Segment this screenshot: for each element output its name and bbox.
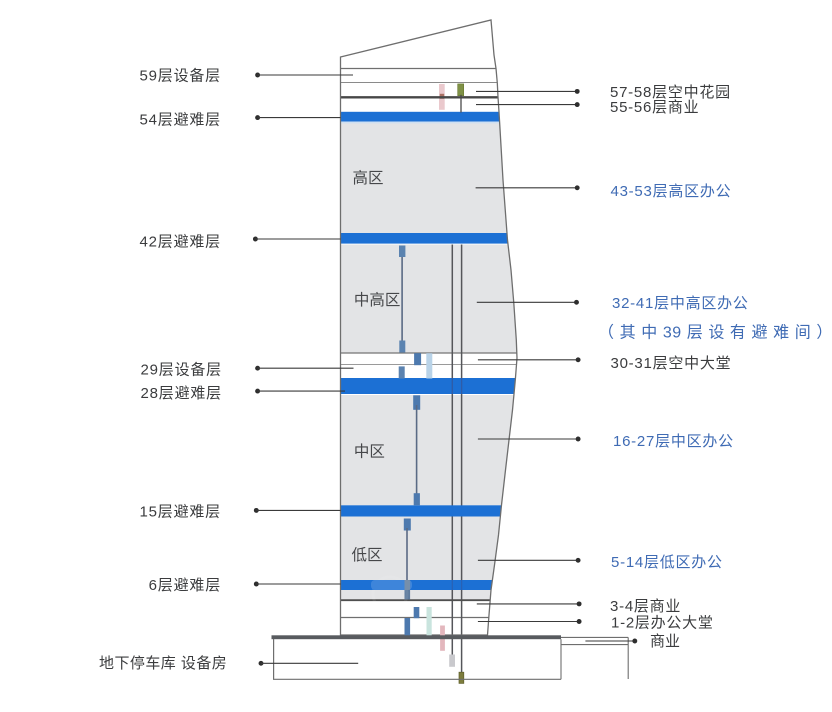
svg-text:32-41层中高区办公: 32-41层中高区办公 [612, 295, 749, 312]
svg-text:低区: 低区 [352, 546, 383, 564]
svg-text:15层避难层: 15层避难层 [140, 503, 222, 520]
svg-text:中高区: 中高区 [354, 291, 401, 309]
svg-text:43-53层高区办公: 43-53层高区办公 [611, 183, 732, 200]
svg-text:地下停车库 设备房: 地下停车库 设备房 [99, 655, 227, 672]
svg-text:高区: 高区 [353, 169, 384, 187]
svg-text:28层避难层: 28层避难层 [141, 385, 223, 402]
svg-text:29层设备层: 29层设备层 [141, 361, 223, 378]
svg-text:59层设备层: 59层设备层 [140, 67, 222, 84]
svg-text:55-56层商业: 55-56层商业 [610, 99, 699, 116]
svg-text:30-31层空中大堂: 30-31层空中大堂 [611, 355, 732, 372]
svg-text:商业: 商业 [650, 633, 680, 650]
svg-text:（其中39层设有避难间）: （其中39层设有避难间） [598, 324, 832, 342]
svg-text:3-4层商业: 3-4层商业 [610, 598, 681, 615]
svg-text:16-27层中区办公: 16-27层中区办公 [613, 433, 734, 450]
svg-text:1-2层办公大堂: 1-2层办公大堂 [611, 615, 714, 632]
svg-text:6层避难层: 6层避难层 [149, 577, 221, 594]
svg-text:5-14层低区办公: 5-14层低区办公 [611, 554, 723, 571]
svg-text:54层避难层: 54层避难层 [140, 111, 222, 128]
svg-text:中区: 中区 [354, 442, 385, 460]
svg-text:42层避难层: 42层避难层 [140, 233, 222, 250]
